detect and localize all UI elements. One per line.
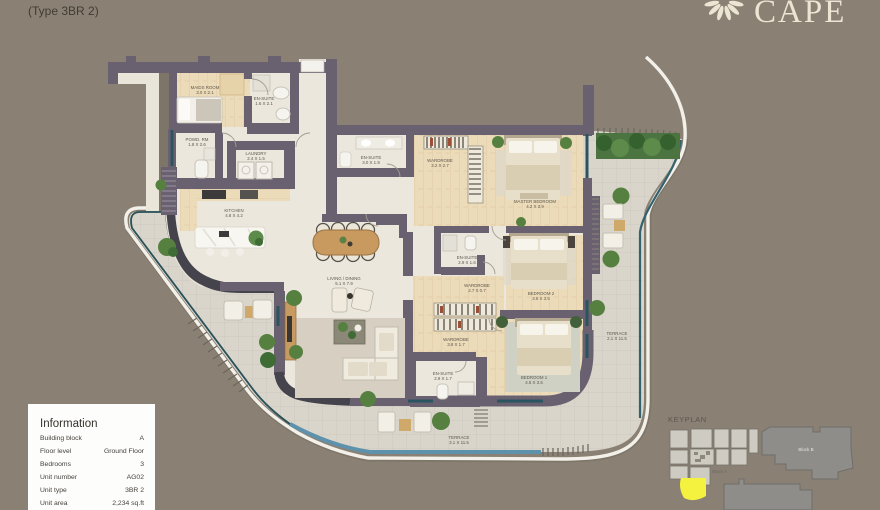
svg-text:2.4 X 1.5: 2.4 X 1.5 [247, 156, 265, 161]
svg-text:(Type 3BR 2): (Type 3BR 2) [28, 4, 99, 18]
svg-text:Bedrooms: Bedrooms [40, 461, 72, 468]
svg-text:A: A [139, 435, 144, 442]
svg-text:3.0 X 1.9: 3.0 X 1.9 [362, 160, 380, 165]
svg-text:Block A: Block A [712, 469, 727, 474]
svg-text:3.2 X 2.7: 3.2 X 2.7 [431, 163, 449, 168]
svg-text:4.8 X 4.2: 4.8 X 4.2 [225, 213, 243, 218]
svg-text:KEYPLAN: KEYPLAN [668, 415, 707, 424]
svg-text:5.1 X 7.9: 5.1 X 7.9 [335, 281, 353, 286]
svg-text:3.0 X 2.1: 3.0 X 2.1 [196, 90, 214, 95]
svg-text:3: 3 [140, 461, 144, 468]
svg-text:Unit number: Unit number [40, 474, 78, 481]
svg-text:Ground Floor: Ground Floor [104, 448, 145, 455]
svg-text:3BR 2: 3BR 2 [125, 487, 144, 494]
svg-text:2.9 X 1.7: 2.9 X 1.7 [434, 376, 452, 381]
svg-text:AG02: AG02 [127, 474, 145, 481]
svg-text:CAPE: CAPE [754, 0, 846, 30]
svg-text:4.2 X 3.9: 4.2 X 3.9 [526, 204, 544, 209]
svg-text:2.7 X 0.7: 2.7 X 0.7 [468, 288, 486, 293]
svg-text:1.8 X 2.6: 1.8 X 2.6 [188, 142, 206, 147]
svg-text:Unit type: Unit type [40, 487, 67, 494]
svg-text:2,234 sq.ft: 2,234 sq.ft [112, 500, 144, 507]
svg-text:Information: Information [40, 418, 98, 430]
svg-text:2.1 X 11.5: 2.1 X 11.5 [607, 336, 627, 341]
svg-text:Floor level: Floor level [40, 448, 72, 455]
svg-text:3.6 X 3.5: 3.6 X 3.5 [532, 296, 550, 301]
svg-text:2.9 X 1.6: 2.9 X 1.6 [458, 260, 476, 265]
svg-text:Building block: Building block [40, 435, 83, 442]
svg-text:3.1 X 11.5: 3.1 X 11.5 [449, 440, 469, 445]
svg-text:1.6 X 2.1: 1.6 X 2.1 [255, 101, 273, 106]
svg-text:Block B: Block B [798, 447, 813, 452]
svg-text:3.8 X 1.7: 3.8 X 1.7 [447, 342, 465, 347]
svg-text:4.5 X 3.5: 4.5 X 3.5 [525, 380, 543, 385]
svg-text:Unit area: Unit area [40, 500, 68, 507]
